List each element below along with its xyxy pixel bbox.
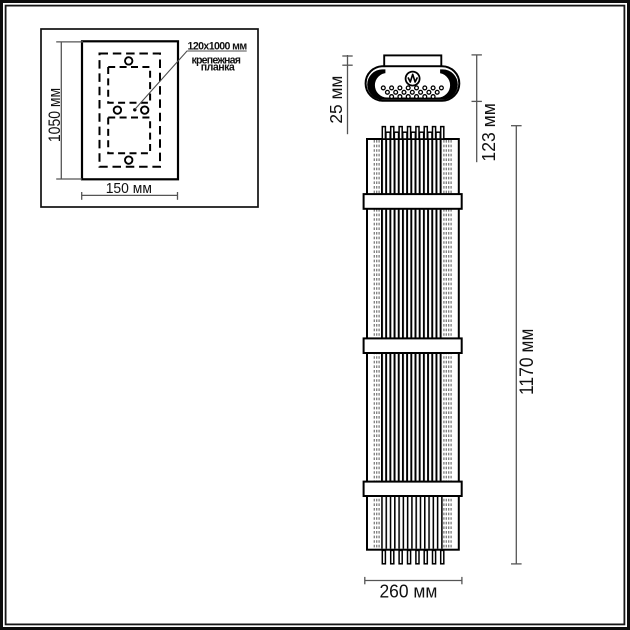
svg-text:120x1000 мм: 120x1000 мм [188, 40, 248, 52]
svg-text:25 мм: 25 мм [326, 76, 346, 124]
svg-text:260 мм: 260 мм [380, 581, 438, 601]
svg-text:1170 мм: 1170 мм [517, 329, 538, 395]
svg-text:150 мм: 150 мм [106, 181, 152, 197]
svg-text:1050 мм: 1050 мм [45, 88, 64, 142]
svg-text:123 мм: 123 мм [479, 103, 499, 161]
svg-text:планка: планка [201, 62, 235, 74]
